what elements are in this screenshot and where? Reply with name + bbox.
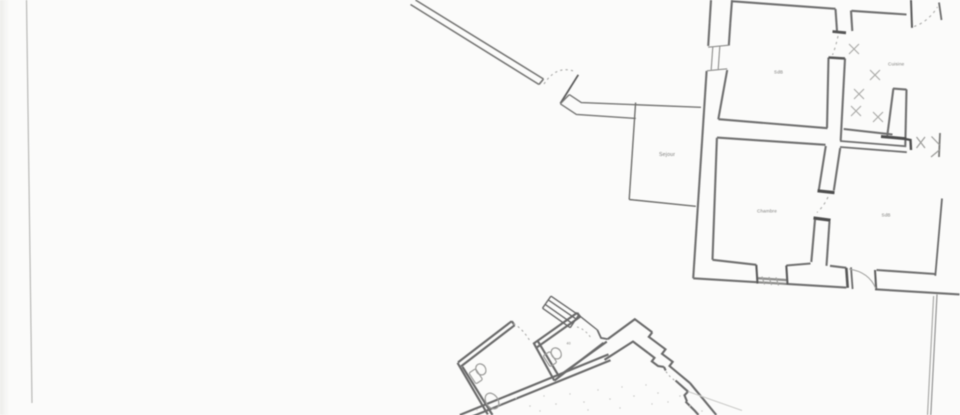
svg-text:Cuisine: Cuisine — [888, 62, 905, 67]
svg-text:SdB: SdB — [882, 213, 891, 218]
svg-text:Chambre: Chambre — [757, 209, 777, 214]
svg-text:Sejour: Sejour — [659, 152, 675, 158]
svg-text:SdB: SdB — [774, 70, 783, 75]
svg-text:40: 40 — [567, 342, 571, 346]
